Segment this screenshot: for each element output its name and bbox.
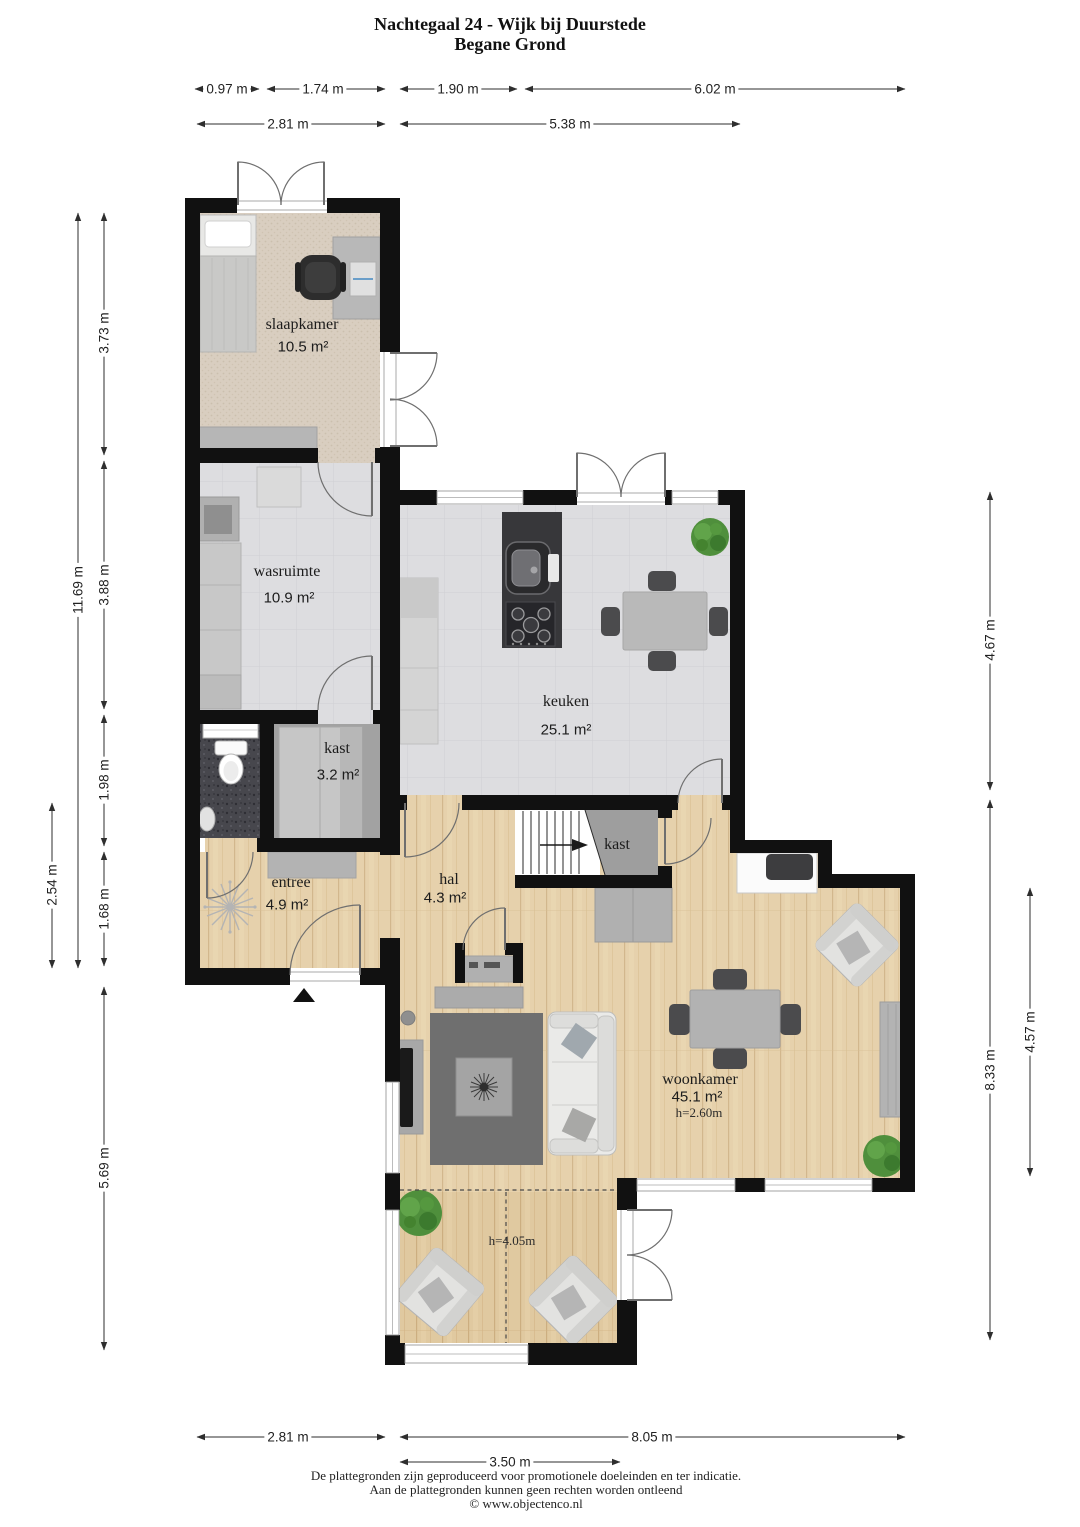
room-label-kast: kast xyxy=(324,740,350,758)
room-label-slaapkamer: slaapkamer xyxy=(266,316,339,334)
room-area-keuken: 25.1 m² xyxy=(541,722,592,739)
dim-left-373: 3.73 m xyxy=(97,309,112,356)
staircase xyxy=(515,810,658,875)
dim-left-1169: 11.69 m xyxy=(71,563,86,617)
desk-nook xyxy=(737,853,817,893)
dim-top-174: 1.74 m xyxy=(299,82,346,97)
bed xyxy=(200,215,256,352)
dim-left-198: 1.98 m xyxy=(97,756,112,803)
dim-left-254: 2.54 m xyxy=(45,861,60,908)
room-label-woonkamer: woonkamer xyxy=(662,1071,738,1089)
dim-right-467: 4.67 m xyxy=(983,616,998,663)
floor-plan-page: Nachtegaal 24 - Wijk bij Duurstede Began… xyxy=(0,0,1080,1527)
sink xyxy=(199,807,215,831)
dim-right-457: 4.57 m xyxy=(1023,1008,1038,1055)
gas-hob xyxy=(506,602,555,646)
room-height-woonkamer: h=2.60m xyxy=(676,1105,723,1121)
room-area-wasruimte: 10.9 m² xyxy=(264,590,315,607)
dim-right-833: 8.33 m xyxy=(983,1046,998,1093)
page-title: Nachtegaal 24 - Wijk bij Duurstede xyxy=(374,14,646,34)
room-label-hal: hal xyxy=(439,871,459,889)
cabinet-niche xyxy=(463,956,513,982)
room-area-slaapkamer: 10.5 m² xyxy=(278,339,329,356)
dim-top-602: 6.02 m xyxy=(691,82,738,97)
plant-icon xyxy=(396,1190,442,1236)
kitchen-counter xyxy=(400,578,438,744)
coffee-table xyxy=(456,1058,512,1116)
dim-top-281: 2.81 m xyxy=(264,117,311,132)
entrance-arrow-icon xyxy=(293,988,315,1002)
stool xyxy=(401,1011,415,1025)
room-label-trapkast: kast xyxy=(604,836,630,854)
room-area-entree: 4.9 m² xyxy=(266,897,309,914)
footer-disclaimer-2: Aan de plattegronden kunnen geen rechten… xyxy=(370,1483,683,1497)
dim-top-538: 5.38 m xyxy=(546,117,593,132)
dim-left-388: 3.88 m xyxy=(97,561,112,608)
footer-copyright: © www.objectenco.nl xyxy=(469,1497,582,1511)
sideboard xyxy=(595,888,672,942)
dim-bottom-805: 8.05 m xyxy=(628,1430,675,1445)
plant-icon xyxy=(863,1135,905,1177)
footer-disclaimer-1: De plattegronden zijn geproduceerd voor … xyxy=(311,1469,741,1483)
dim-left-168: 1.68 m xyxy=(97,885,112,932)
dim-left-569: 5.69 m xyxy=(97,1144,112,1191)
tv-unit xyxy=(396,1040,423,1134)
room-area-woonkamer: 45.1 m² xyxy=(672,1089,723,1106)
room-area-kast: 3.2 m² xyxy=(317,767,360,784)
dim-bottom-281: 2.81 m xyxy=(264,1430,311,1445)
room-label-entree: entree xyxy=(271,874,310,892)
room-height-serre: h=4.05m xyxy=(489,1233,536,1249)
room-label-wasruimte: wasruimte xyxy=(254,563,321,581)
plant-icon xyxy=(691,518,729,556)
floor-plan-drawing xyxy=(0,0,1080,1527)
dim-top-097: 0.97 m xyxy=(203,82,250,97)
room-label-keuken: keuken xyxy=(543,693,589,711)
kitchen-island xyxy=(502,512,562,648)
sofa xyxy=(548,1012,616,1155)
dim-top-190: 1.90 m xyxy=(434,82,481,97)
office-chair xyxy=(295,255,346,300)
dresser xyxy=(197,427,317,451)
room-area-hal: 4.3 m² xyxy=(424,890,467,907)
page-subtitle: Begane Grond xyxy=(454,34,565,54)
sideboard xyxy=(435,987,523,1008)
